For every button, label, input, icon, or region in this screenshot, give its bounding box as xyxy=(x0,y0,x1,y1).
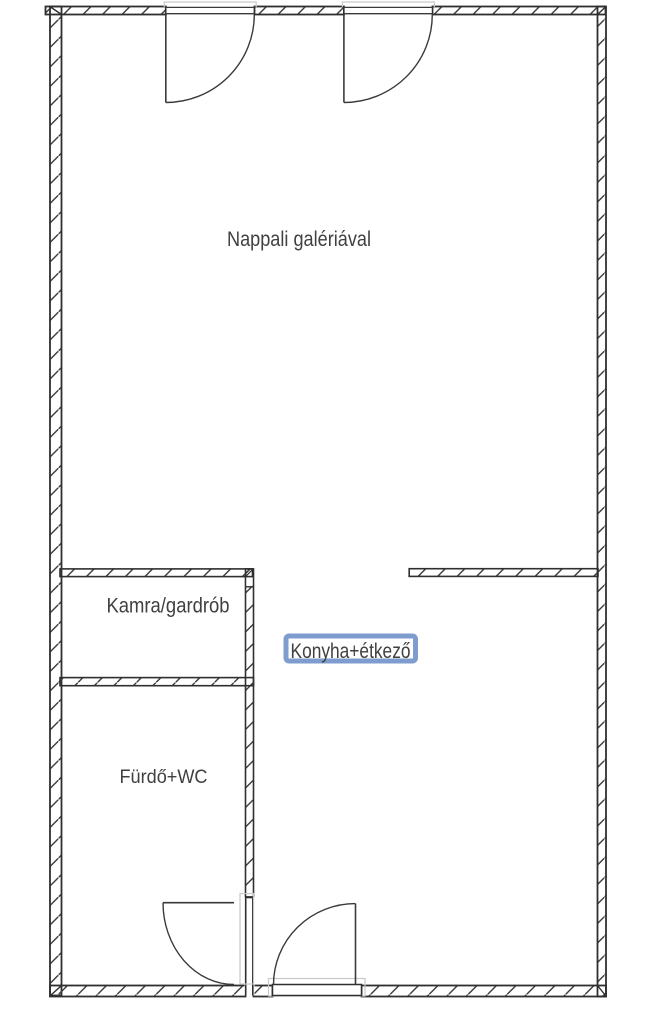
svg-text:Nappali galériával: Nappali galériával xyxy=(227,227,371,251)
svg-text:Konyha+étkező: Konyha+étkező xyxy=(291,640,411,663)
svg-text:Fürdő+WC: Fürdő+WC xyxy=(120,767,208,788)
svg-text:Kamra/gardrób: Kamra/gardrób xyxy=(107,595,230,618)
